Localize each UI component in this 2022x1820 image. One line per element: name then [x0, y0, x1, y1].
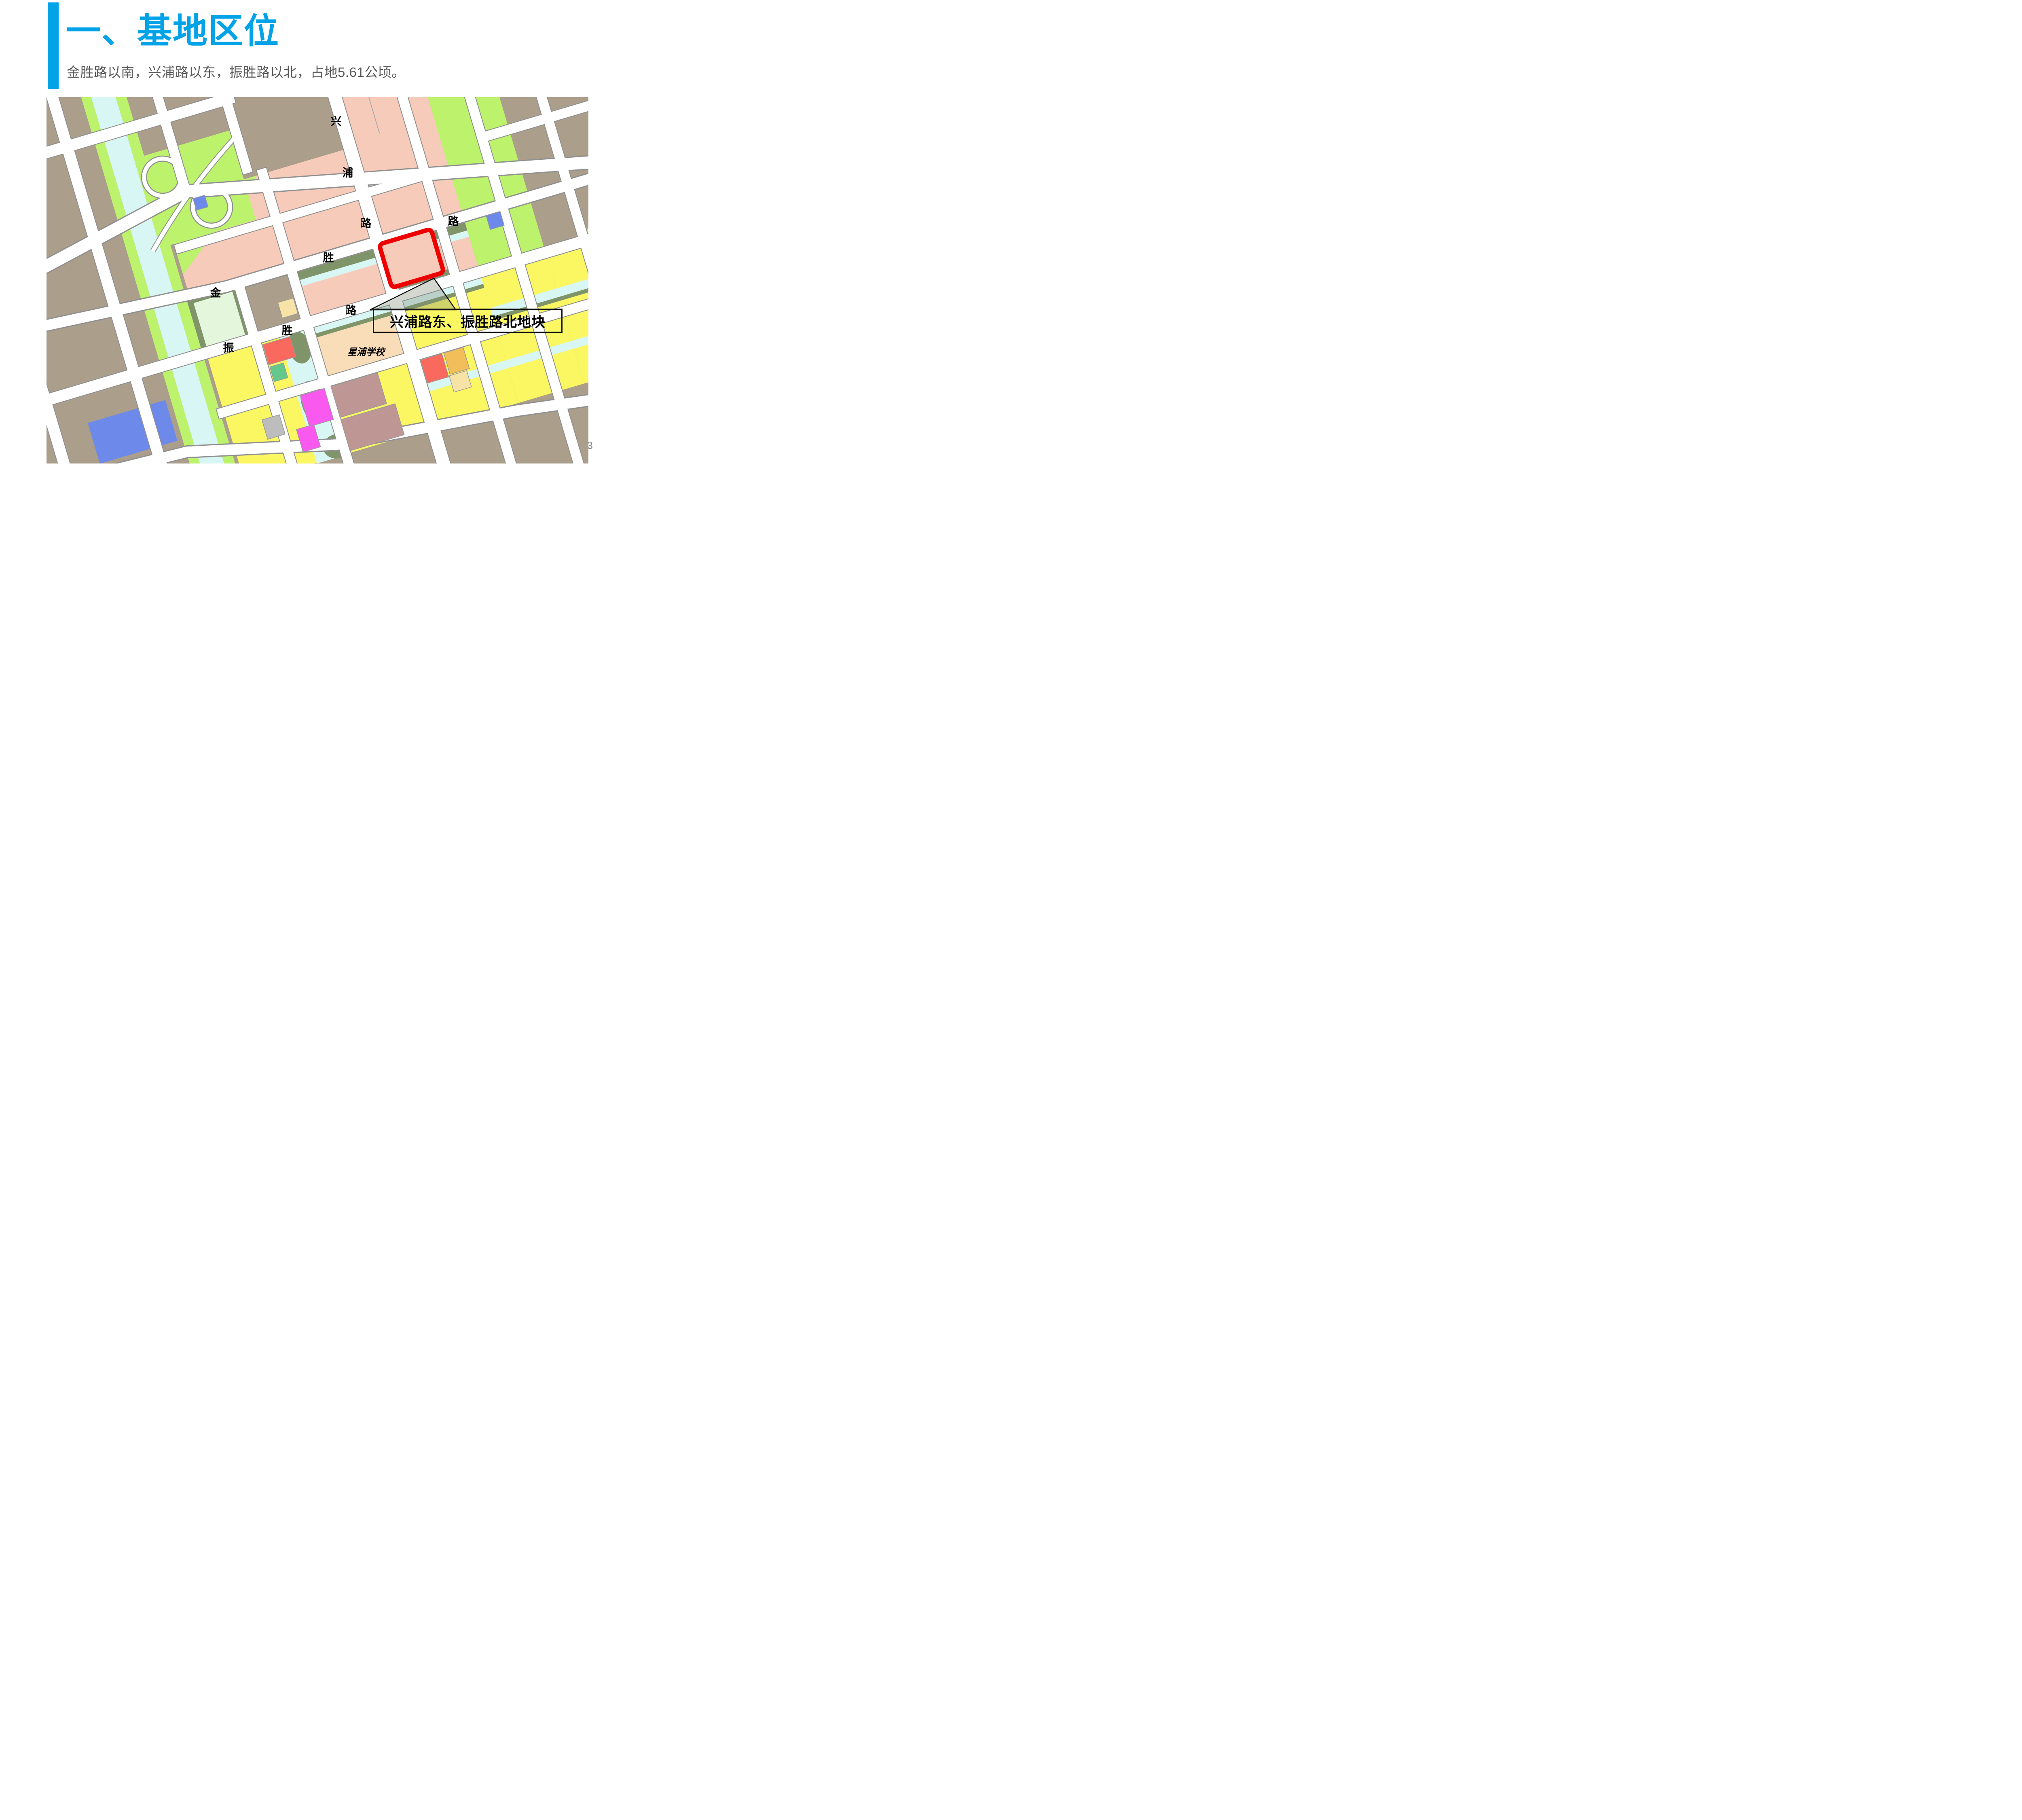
road-label-jinsheng-3: 路 [448, 213, 459, 229]
page-number: 3 [587, 440, 593, 452]
page-title: 一、基地区位 [66, 12, 279, 51]
page-subtitle: 金胜路以南，兴浦路以东，振胜路以北，占地5.61公顷。 [67, 61, 405, 81]
land-use-map: 兴 浦 路 金 胜 路 振 胜 路 星浦学校 兴浦路东、振胜路北地块 [47, 97, 588, 463]
accent-bar [48, 2, 59, 89]
map-canvas [47, 97, 588, 463]
site-callout: 兴浦路东、振胜路北地块 [373, 309, 563, 333]
road-label-xingpu-3: 路 [361, 215, 372, 231]
slide: 一、基地区位 金胜路以南，兴浦路以东，振胜路以北，占地5.61公顷。 [0, 0, 634, 476]
road-label-zhensheng-1: 振 [223, 339, 234, 355]
road-label-zhensheng-2: 胜 [282, 322, 293, 338]
road-label-zhensheng-3: 路 [346, 302, 357, 317]
road-label-jinsheng-1: 金 [210, 284, 221, 300]
road-label-xingpu-1: 兴 [331, 113, 342, 129]
road-label-jinsheng-2: 胜 [323, 249, 334, 265]
road-label-xingpu-2: 浦 [343, 164, 353, 180]
school-label: 星浦学校 [347, 344, 385, 358]
map-grid [47, 97, 588, 463]
